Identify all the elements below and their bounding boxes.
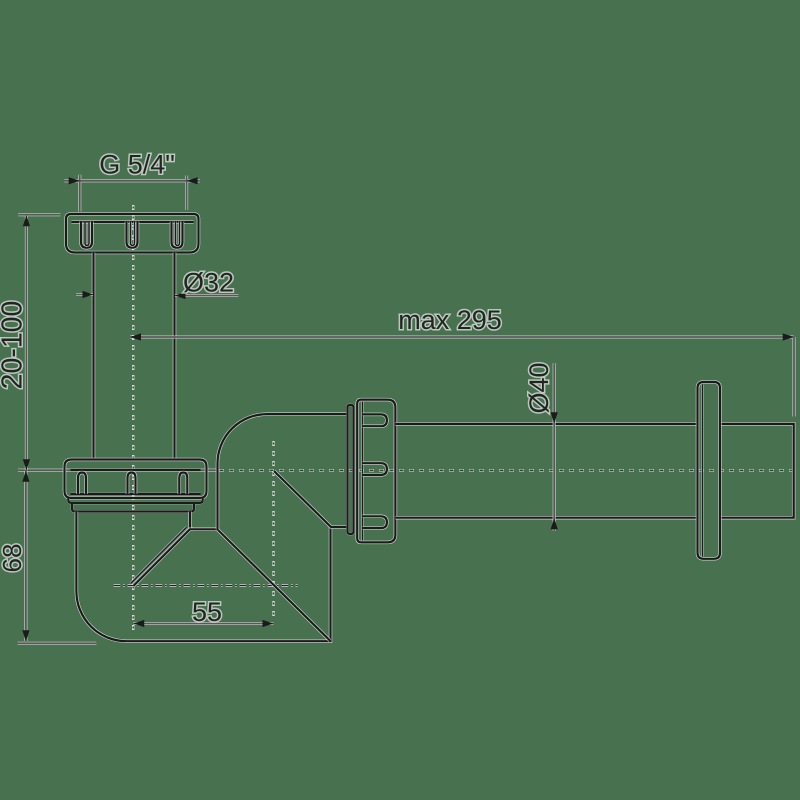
svg-text:68: 68 [0, 544, 27, 573]
svg-text:Ø32: Ø32 [183, 268, 234, 298]
svg-text:G 5/4": G 5/4" [99, 150, 175, 180]
svg-text:55: 55 [192, 597, 222, 627]
svg-text:20-100: 20-100 [0, 301, 29, 390]
svg-text:Ø40: Ø40 [524, 362, 554, 413]
svg-text:max 295: max 295 [398, 305, 502, 335]
